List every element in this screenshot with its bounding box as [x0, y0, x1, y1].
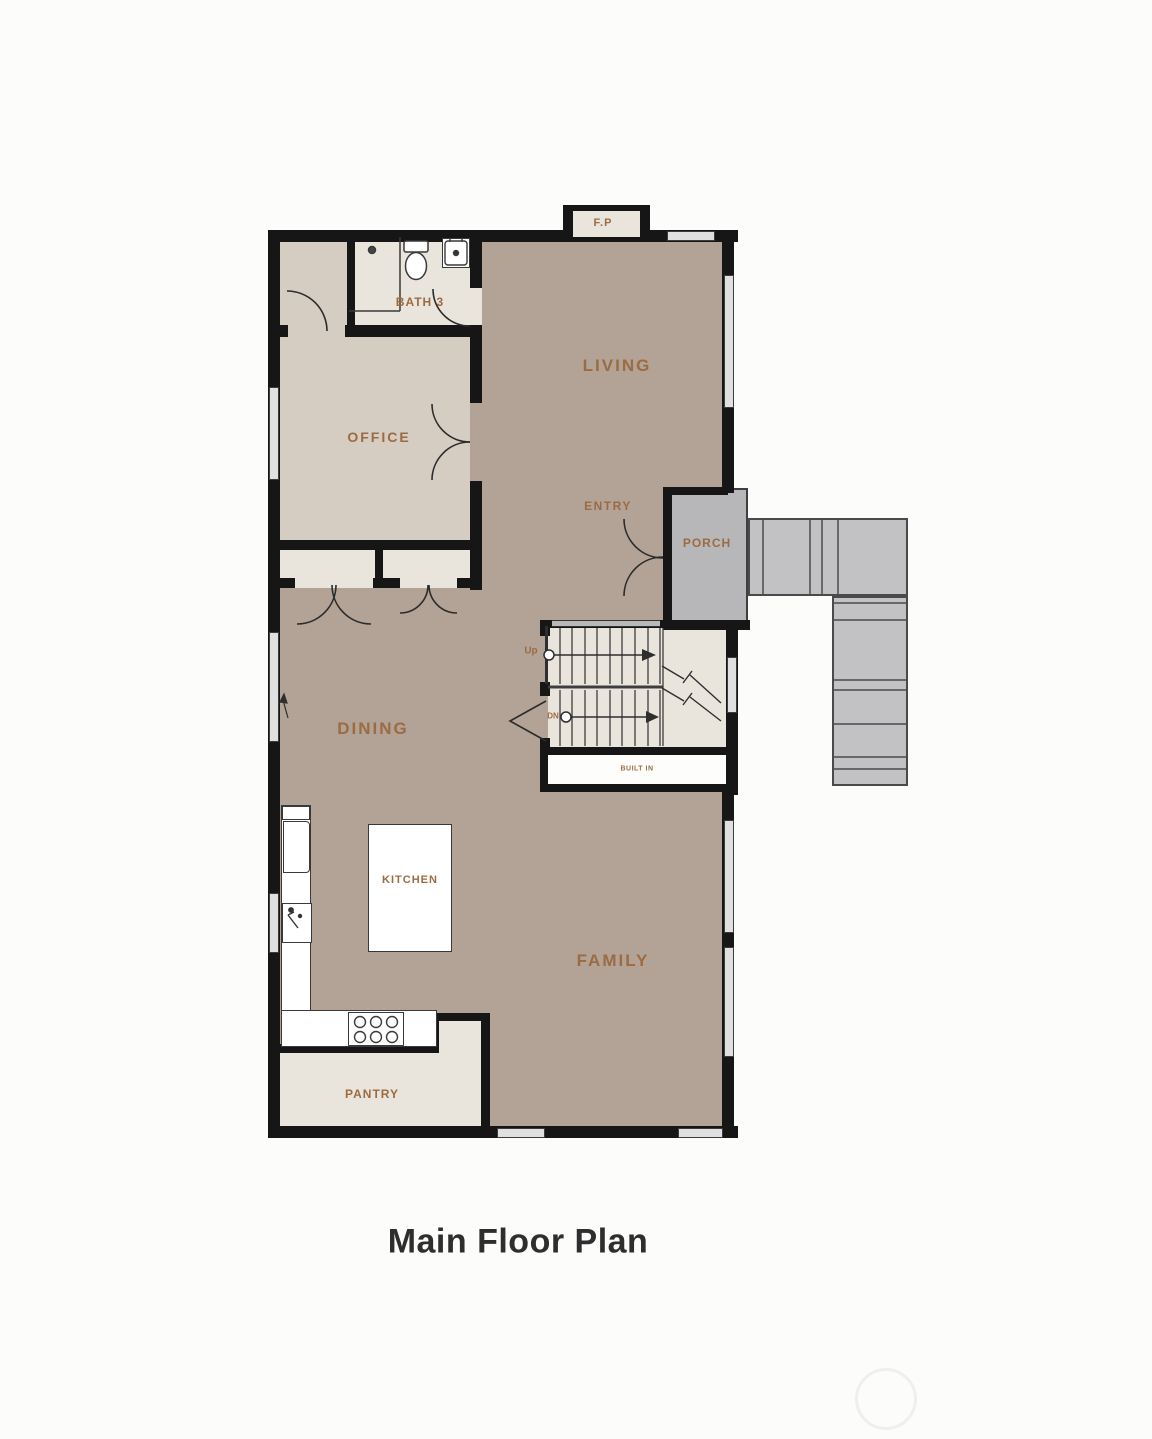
wall — [540, 682, 550, 696]
porch-deck — [666, 488, 748, 629]
plan-title: Main Floor Plan — [388, 1223, 649, 1262]
stove — [348, 1012, 404, 1046]
room-label-family: FAMILY — [577, 951, 650, 971]
refrigerator-body — [283, 821, 310, 873]
stairwell-floor — [548, 626, 726, 748]
room-label-porch: PORCH — [683, 536, 731, 550]
wall — [663, 487, 728, 495]
exterior-stairs-upper-run — [748, 518, 908, 596]
stair-header-bar — [552, 620, 660, 627]
refrigerator — [282, 806, 310, 820]
stair-label-up: Up — [524, 646, 537, 657]
wall — [347, 237, 355, 330]
room-label-office: OFFICE — [347, 429, 410, 445]
wall — [481, 1013, 490, 1130]
kitchen-sink — [282, 903, 312, 943]
room-label-pantry: PANTRY — [345, 1087, 399, 1101]
window — [727, 657, 737, 713]
room-label-bath: BATH 3 — [396, 295, 444, 309]
room-label-kitchen: KITCHEN — [382, 874, 438, 886]
window — [724, 947, 734, 1057]
kitchen-island — [368, 824, 452, 952]
window — [667, 231, 715, 241]
window — [269, 893, 279, 953]
window — [269, 387, 279, 480]
wall — [540, 784, 738, 792]
watermark-circle — [855, 1368, 917, 1430]
bath-sink — [442, 238, 470, 268]
exterior-stairs-lower-run — [832, 596, 908, 786]
wall — [268, 325, 288, 337]
wall — [470, 481, 482, 590]
stair-edge-line — [545, 626, 548, 684]
wall — [663, 487, 672, 630]
wall — [457, 578, 482, 588]
wall — [540, 747, 738, 755]
window — [497, 1128, 545, 1138]
room-label-living: LIVING — [583, 356, 652, 376]
window — [724, 820, 734, 933]
window — [678, 1128, 723, 1138]
room-label-entry: ENTRY — [584, 499, 632, 513]
wall — [373, 578, 400, 588]
wall — [268, 578, 295, 588]
wall — [470, 230, 482, 288]
wall — [345, 325, 482, 337]
room-label-fireplace: F.P — [594, 217, 613, 229]
closet-top-left-floor — [280, 242, 355, 330]
wall — [470, 330, 482, 403]
window — [269, 632, 279, 742]
pantry-floor-notch — [437, 1020, 484, 1054]
wall — [268, 540, 482, 550]
floor-plan: F.P BATH 3 LIVING OFFICE ENTRY PORCH Up … — [0, 0, 1152, 1439]
stair-label-down: DN — [547, 712, 559, 721]
room-label-dining: DINING — [337, 719, 409, 739]
label-built-in: BUILT IN — [620, 766, 653, 773]
page: { "title": "Main Floor Plan", "labels": … — [0, 0, 1152, 1439]
window — [724, 275, 734, 408]
